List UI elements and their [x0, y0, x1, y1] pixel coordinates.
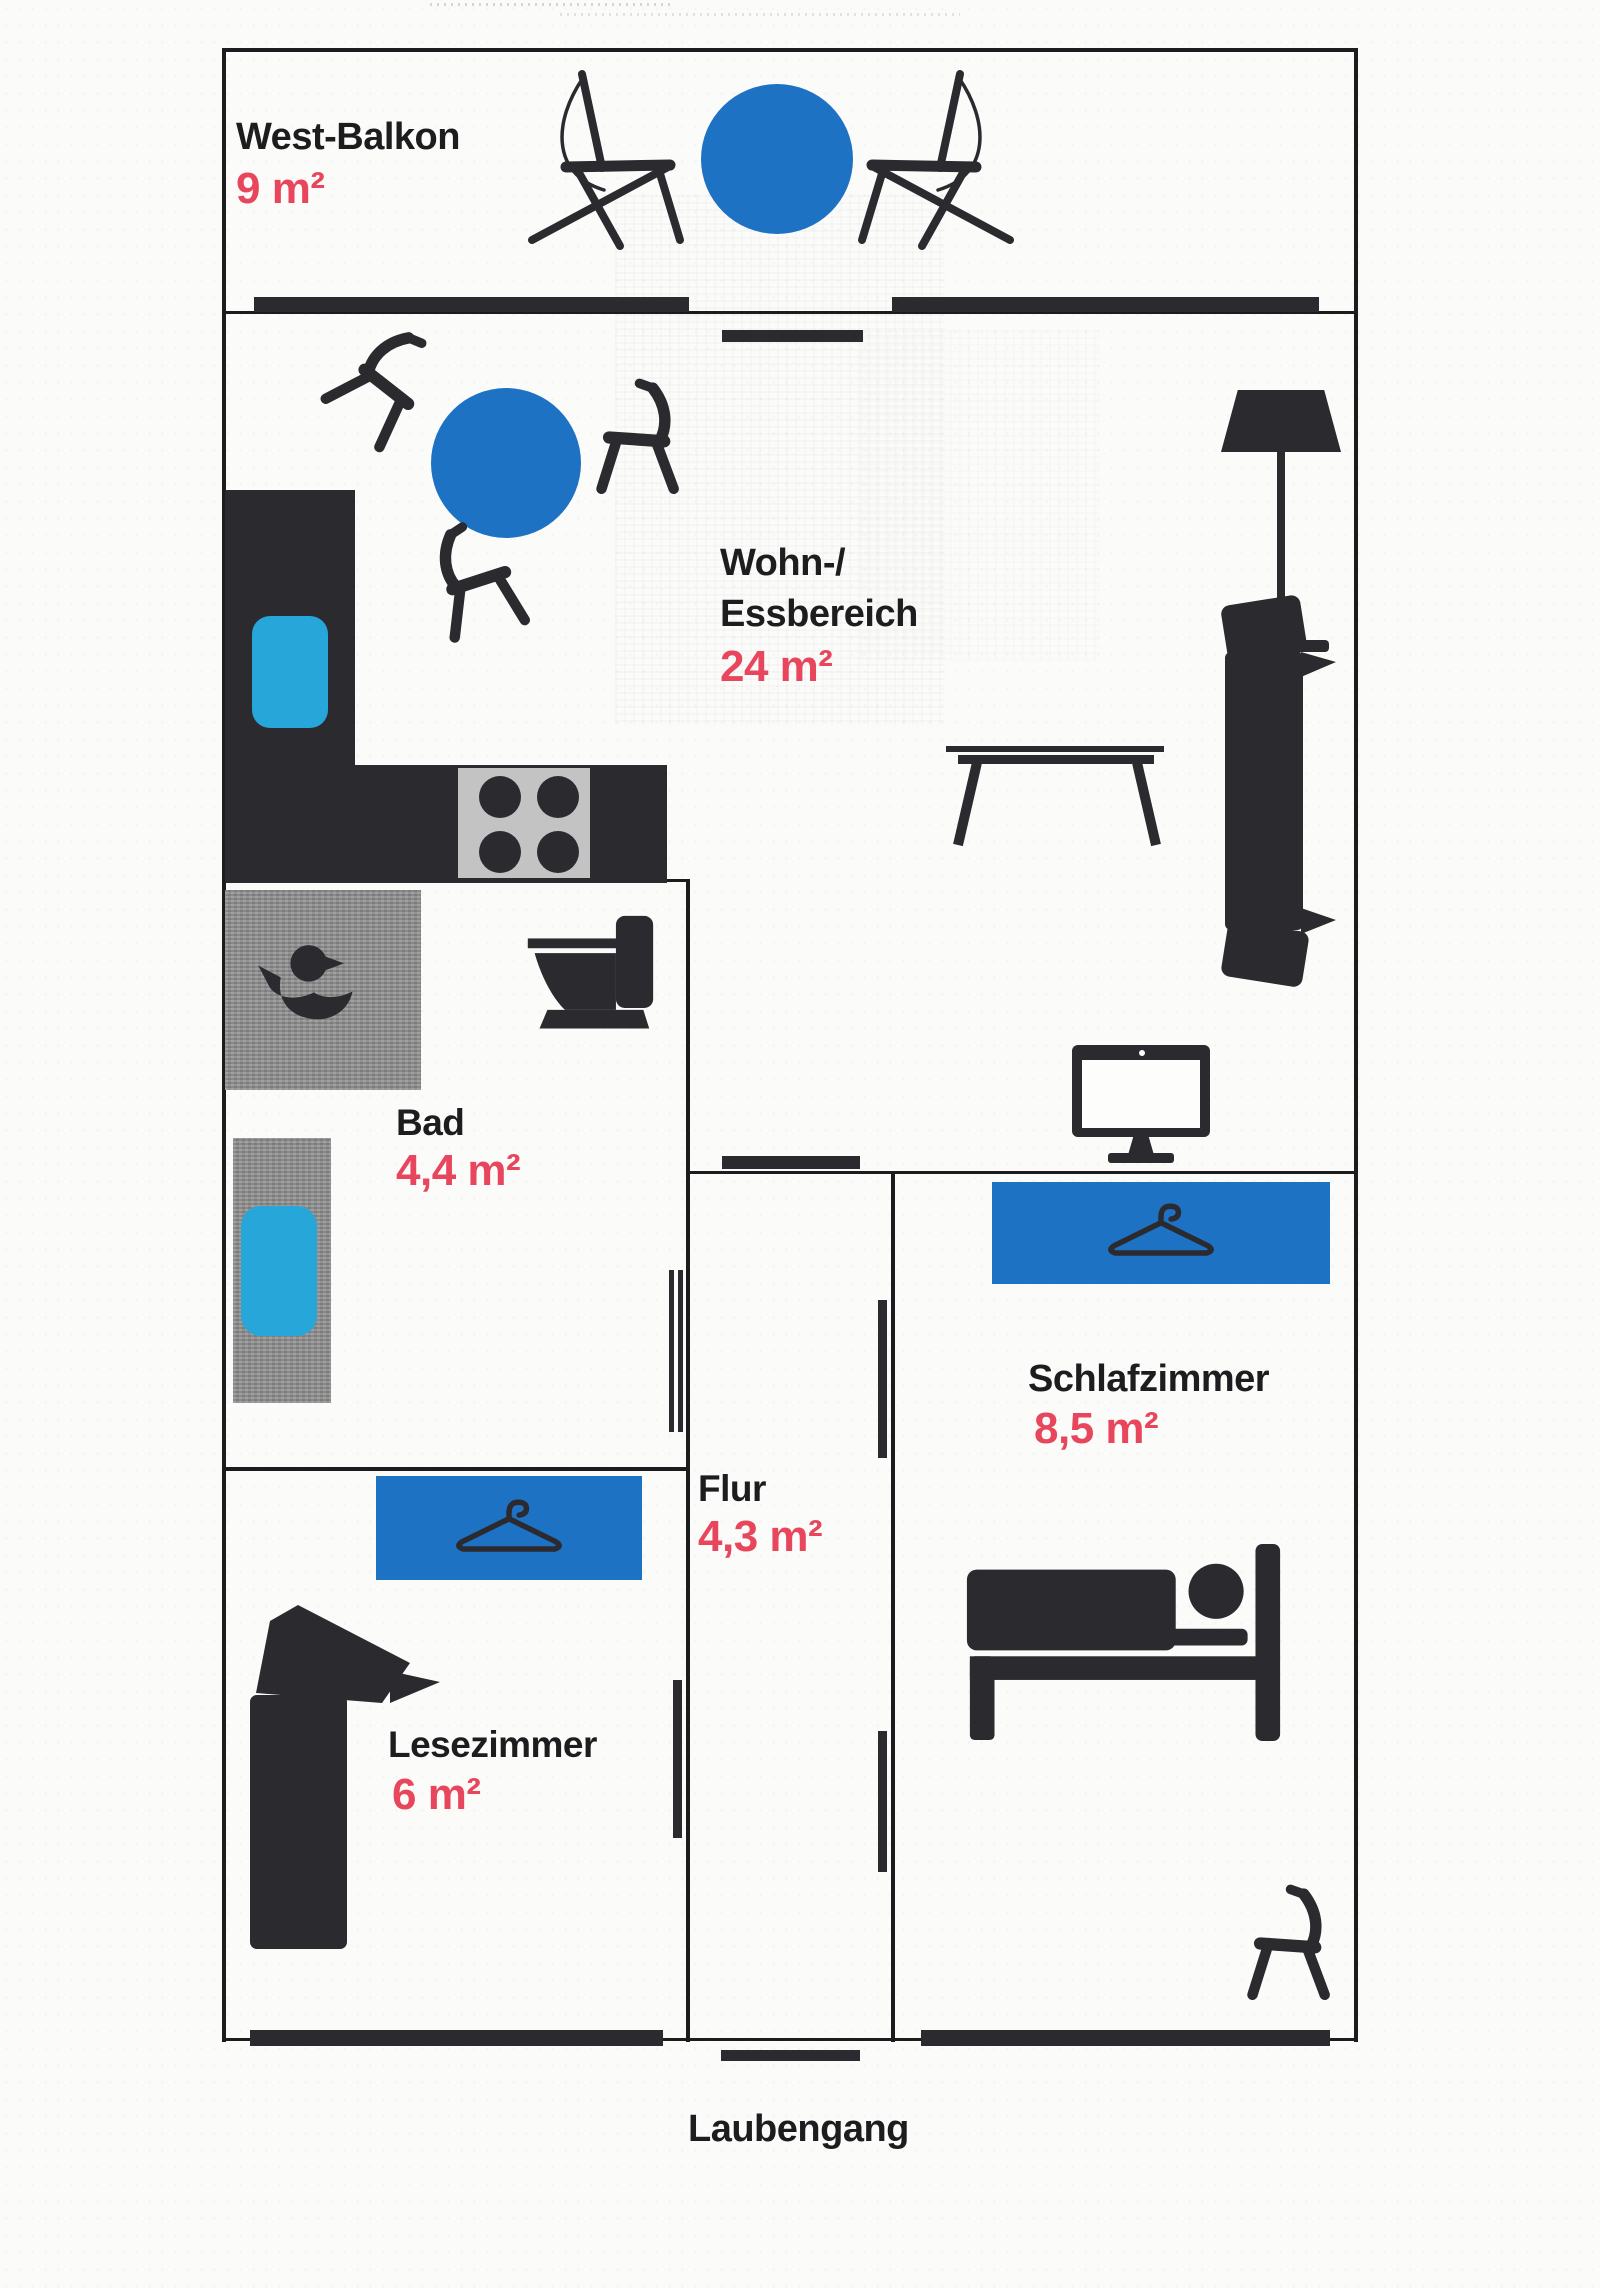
dining-chair-icon — [592, 380, 687, 495]
burner-icon — [537, 831, 579, 873]
dining-chair-icon — [1243, 1886, 1338, 2001]
schlafzimmer-door-leaf — [878, 1731, 887, 1872]
balcony-door-leaf — [722, 330, 863, 342]
floor-plan: West-Balkon 9 m² Wohn-/Essbereich 24 m² — [0, 0, 1600, 2288]
burner-icon — [479, 831, 521, 873]
lounge-chair-icon — [852, 68, 1022, 248]
living-schlafzimmer-wall — [686, 1171, 1358, 1174]
outer-wall-top — [222, 48, 1358, 52]
monitor-stand — [1108, 1153, 1174, 1163]
toilet-icon — [518, 912, 660, 1054]
room-name: Schlafzimmer — [1028, 1354, 1269, 1405]
wall-segment — [892, 297, 1319, 312]
bathtub-icon — [241, 1206, 317, 1336]
lounge-chair-icon — [520, 68, 690, 248]
wall-segment — [250, 2030, 663, 2046]
room-name: Flur — [698, 1464, 766, 1514]
hanger-icon — [1096, 1198, 1226, 1264]
bad-lesezimmer-wall — [222, 1467, 690, 1471]
burner-icon — [537, 776, 579, 818]
bad-door-leaf — [678, 1270, 683, 1432]
coffee-table-icon — [946, 746, 1164, 752]
burner-icon — [479, 776, 521, 818]
room-name: Bad — [396, 1098, 464, 1148]
wall-segment — [254, 297, 689, 312]
scan-artifact — [430, 3, 670, 6]
monitor-camera-dot — [1139, 1050, 1145, 1056]
room-name-line1: Wohn-/ — [720, 542, 845, 584]
room-name-line2: Essbereich — [720, 593, 918, 635]
outer-wall-right — [1354, 48, 1358, 2042]
round-table-icon — [701, 84, 853, 234]
wall-segment — [921, 2030, 1330, 2046]
room-area: 8,5 m² — [1034, 1404, 1158, 1454]
bed-icon — [962, 1540, 1287, 1747]
bad-flur-wall-left — [686, 881, 690, 2042]
schlafzimmer-door-leaf — [878, 1300, 887, 1458]
coffee-table-icon — [953, 762, 982, 846]
scan-artifact — [560, 13, 960, 16]
coffee-table-icon — [958, 755, 1154, 764]
room-name: West-Balkon — [236, 112, 460, 163]
laubengang-label: Laubengang — [688, 2104, 909, 2155]
flur-wall-right — [891, 1171, 895, 2042]
bad-door-leaf — [669, 1270, 674, 1432]
hanger-icon — [444, 1494, 574, 1560]
lesezimmer-door-leaf — [673, 1680, 682, 1838]
room-area: 24 m² — [720, 642, 832, 692]
flur-door-leaf — [722, 1156, 860, 1169]
kitchen-counter — [225, 765, 667, 883]
coffee-table-icon — [1132, 762, 1161, 846]
room-name: Lesezimmer — [388, 1720, 597, 1770]
sofa-icon — [1198, 592, 1343, 992]
room-area: 6 m² — [392, 1770, 480, 1820]
room-area: 9 m² — [236, 164, 324, 214]
floor-lamp-icon — [1221, 390, 1341, 452]
room-name: Wohn-/Essbereich — [720, 538, 918, 640]
duck-icon — [255, 928, 373, 1046]
entry-door-leaf — [721, 2050, 860, 2061]
monitor-screen — [1082, 1060, 1200, 1128]
room-area: 4,4 m² — [396, 1146, 520, 1196]
sink-icon — [252, 616, 328, 728]
room-area: 4,3 m² — [698, 1512, 822, 1562]
